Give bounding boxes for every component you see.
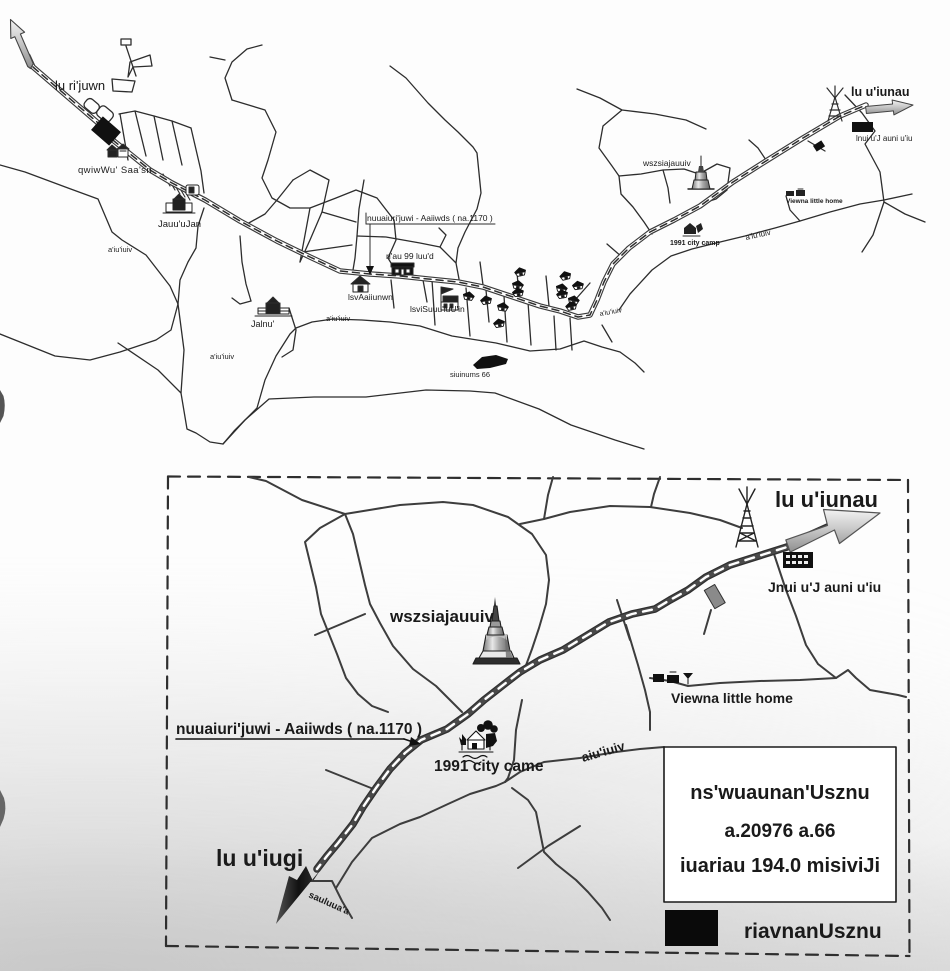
- svg-text:lnui u'J auni u'iu: lnui u'J auni u'iu: [856, 134, 912, 143]
- svg-text:a'iu'iuiv: a'iu'iuiv: [108, 245, 132, 254]
- svg-text:Viewna little home: Viewna little home: [671, 690, 793, 706]
- svg-text:lsviSuuu'iuU'in: lsviSuuu'iuU'in: [410, 304, 465, 314]
- svg-text:lu u'iugi: lu u'iugi: [216, 845, 303, 871]
- svg-text:lu ri'juwn: lu ri'juwn: [55, 78, 105, 93]
- svg-text:1991 city camp: 1991 city camp: [670, 240, 720, 247]
- svg-text:a'iu'iuiv: a'iu'iuiv: [210, 352, 234, 361]
- svg-text:nuuaiuri'juwi - Aaiiwds ( na.1: nuuaiuri'juwi - Aaiiwds ( na.1170 ): [367, 213, 493, 223]
- svg-text:Jalnu': Jalnu': [251, 319, 275, 329]
- svg-text:ri'au 99 luu'd: ri'au 99 luu'd: [386, 251, 434, 261]
- svg-text:lu u'iunau: lu u'iunau: [775, 487, 878, 512]
- svg-text:Jnui u'J auni u'iu: Jnui u'J auni u'iu: [768, 579, 881, 595]
- svg-text:riavnanUsznu: riavnanUsznu: [744, 920, 882, 943]
- svg-text:iuariau 194.0 misiviJi: iuariau 194.0 misiviJi: [680, 855, 880, 877]
- svg-text:nuuaiuri'juwi - Aaiiwds ( na.1: nuuaiuri'juwi - Aaiiwds ( na.1170 ): [176, 721, 422, 738]
- svg-text:Jauu'uJan: Jauu'uJan: [158, 219, 201, 230]
- svg-text:siuinums 66: siuinums 66: [450, 370, 490, 379]
- svg-text:a'iu'iuiv: a'iu'iuiv: [326, 314, 350, 323]
- svg-text:lsvAaiiunwn: lsvAaiiunwn: [348, 292, 393, 302]
- svg-text:a.20976 a.66: a.20976 a.66: [725, 821, 836, 842]
- svg-text:Viewna little home: Viewna little home: [786, 198, 843, 205]
- svg-text:ns'wuaunan'Usznu: ns'wuaunan'Usznu: [690, 782, 870, 804]
- svg-text:wszsiajauuiv: wszsiajauuiv: [642, 158, 691, 168]
- svg-text:wszsiajauuiv: wszsiajauuiv: [389, 607, 494, 626]
- svg-text:lu u'iunau: lu u'iunau: [851, 85, 910, 99]
- svg-text:qwiwWu' Saa'sn: qwiwWu' Saa'sn: [78, 165, 152, 176]
- svg-text:1991 city came: 1991 city came: [434, 758, 544, 775]
